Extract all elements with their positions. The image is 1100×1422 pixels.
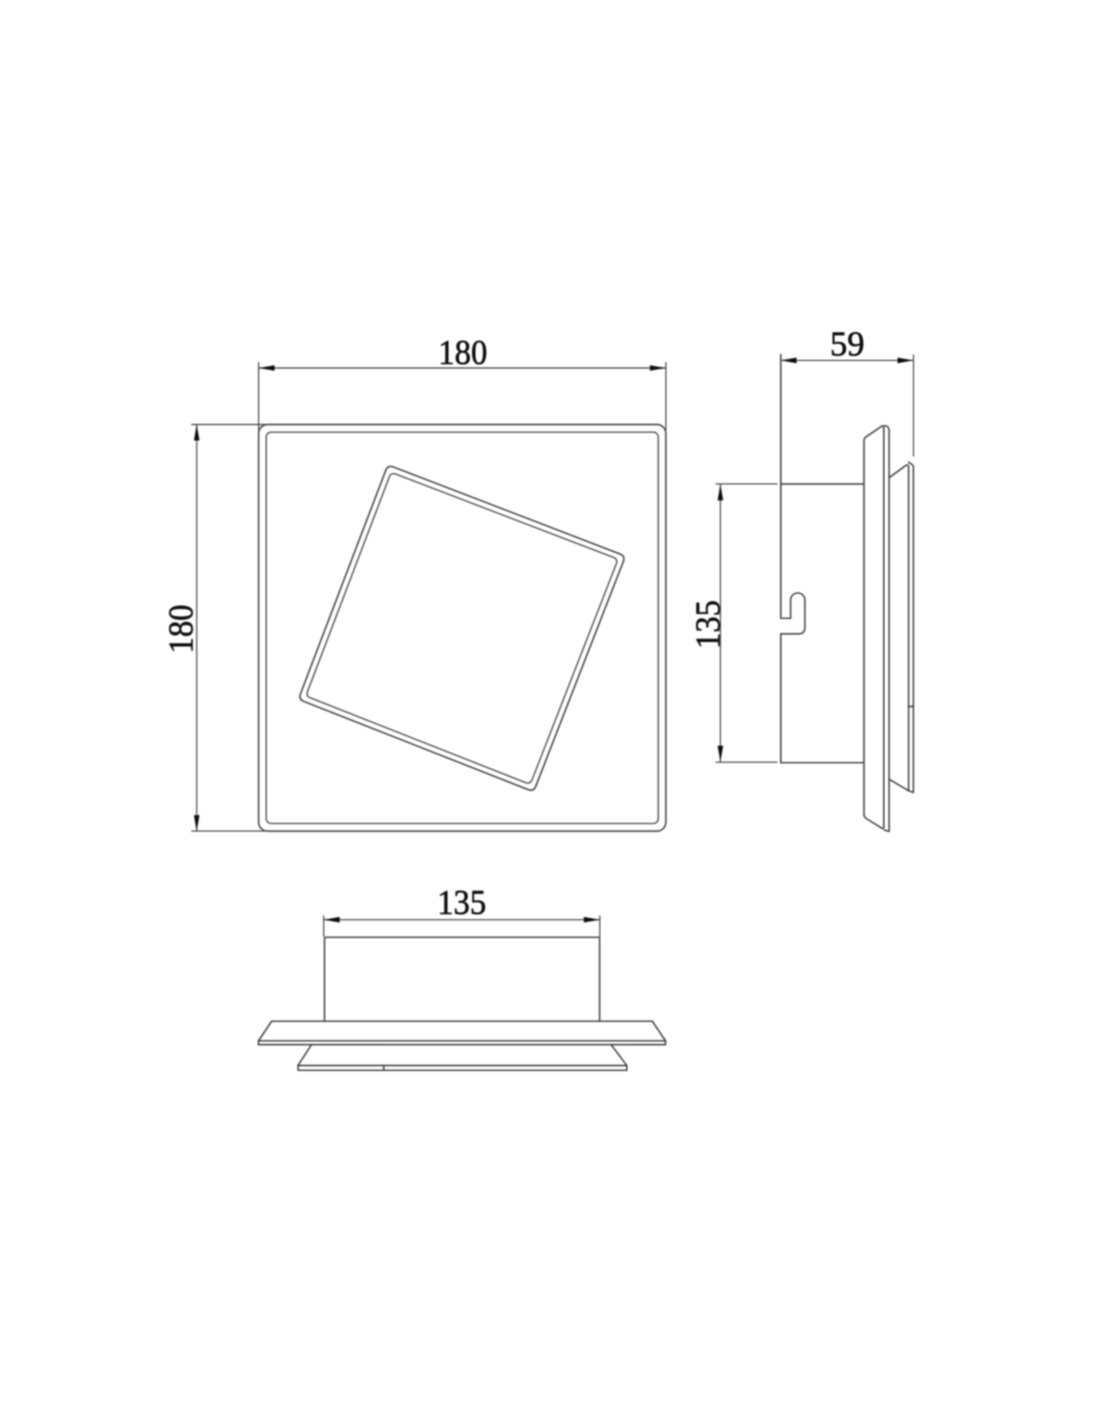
svg-text:180: 180 xyxy=(162,605,201,654)
svg-text:180: 180 xyxy=(438,333,487,372)
svg-text:135: 135 xyxy=(689,600,728,649)
svg-text:135: 135 xyxy=(437,883,486,922)
svg-text:59: 59 xyxy=(830,325,865,364)
